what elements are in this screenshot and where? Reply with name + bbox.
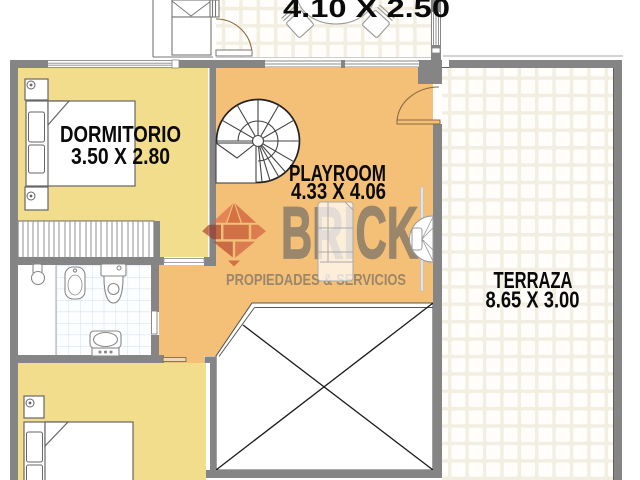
svg-text:4.10 X 2.50: 4.10 X 2.50 (283, 0, 450, 23)
svg-text:8.65 X 3.00: 8.65 X 3.00 (486, 287, 580, 313)
svg-text:3.50 X 2.80: 3.50 X 2.80 (71, 143, 170, 169)
svg-text:PROPIEDADES & SERVICIOS: PROPIEDADES & SERVICIOS (226, 272, 406, 289)
svg-text:4.33 X 4.06: 4.33 X 4.06 (291, 178, 386, 204)
